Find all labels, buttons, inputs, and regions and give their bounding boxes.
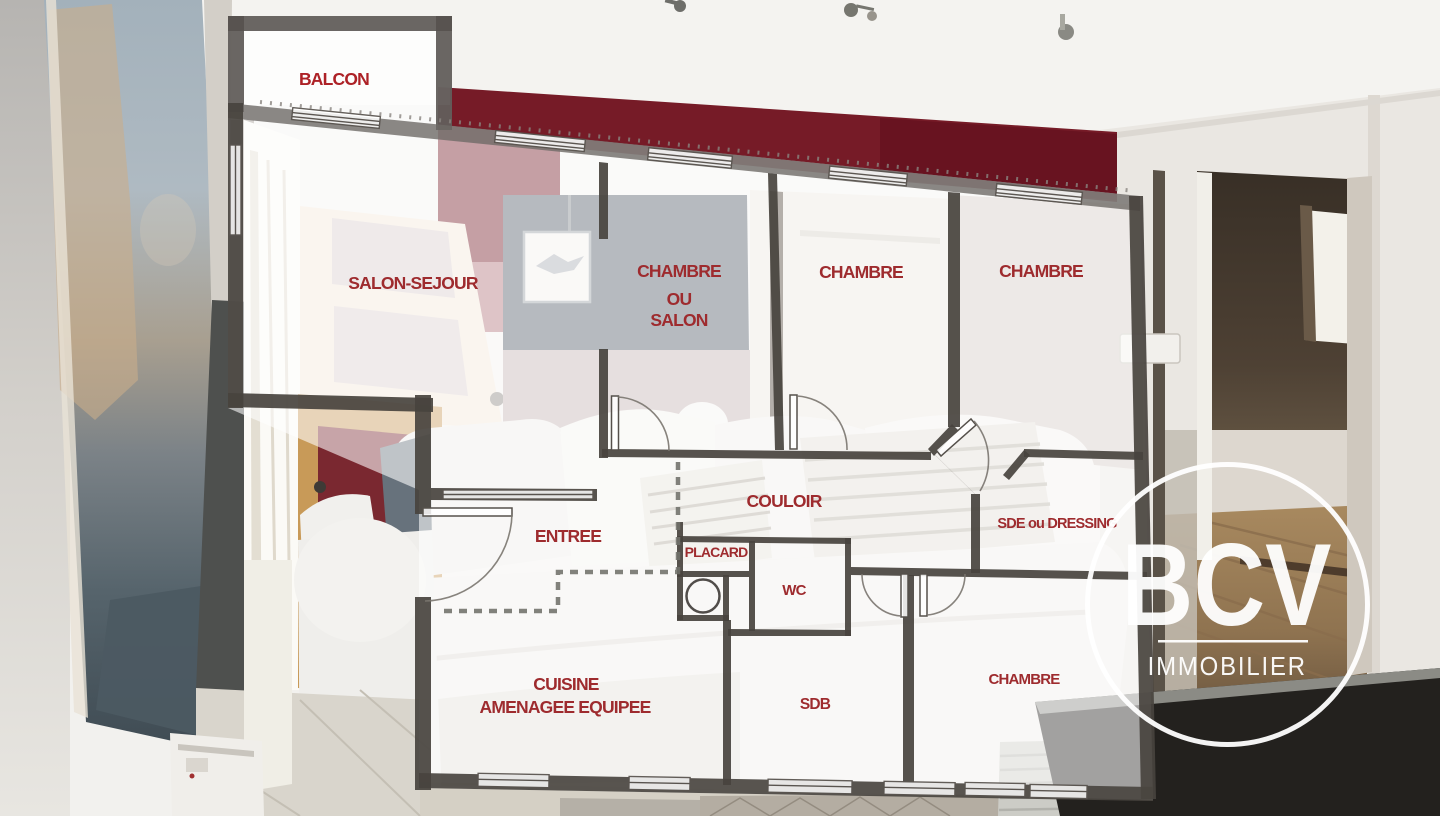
- svg-text:CHAMBRE: CHAMBRE: [988, 671, 1060, 688]
- svg-text:CHAMBRE: CHAMBRE: [819, 262, 903, 282]
- svg-text:SALON-SEJOUR: SALON-SEJOUR: [348, 273, 479, 293]
- svg-text:SDE ou DRESSING: SDE ou DRESSING: [997, 516, 1117, 532]
- svg-text:SALON: SALON: [650, 310, 707, 330]
- svg-text:OU: OU: [667, 289, 692, 309]
- svg-text:CHAMBRE: CHAMBRE: [999, 261, 1083, 281]
- svg-text:CUISINE: CUISINE: [533, 674, 599, 694]
- svg-text:WC: WC: [782, 582, 806, 599]
- svg-text:IMMOBILIER: IMMOBILIER: [1148, 652, 1307, 681]
- svg-text:CHAMBRE: CHAMBRE: [637, 261, 721, 281]
- svg-text:BALCON: BALCON: [299, 69, 369, 89]
- svg-text:COULOIR: COULOIR: [746, 491, 822, 511]
- svg-text:PLACARD: PLACARD: [685, 544, 749, 560]
- svg-text:SDB: SDB: [800, 696, 831, 713]
- svg-text:BCV: BCV: [1122, 520, 1332, 650]
- svg-text:AMENAGEE EQUIPEE: AMENAGEE EQUIPEE: [480, 697, 651, 717]
- svg-text:ENTREE: ENTREE: [535, 526, 601, 546]
